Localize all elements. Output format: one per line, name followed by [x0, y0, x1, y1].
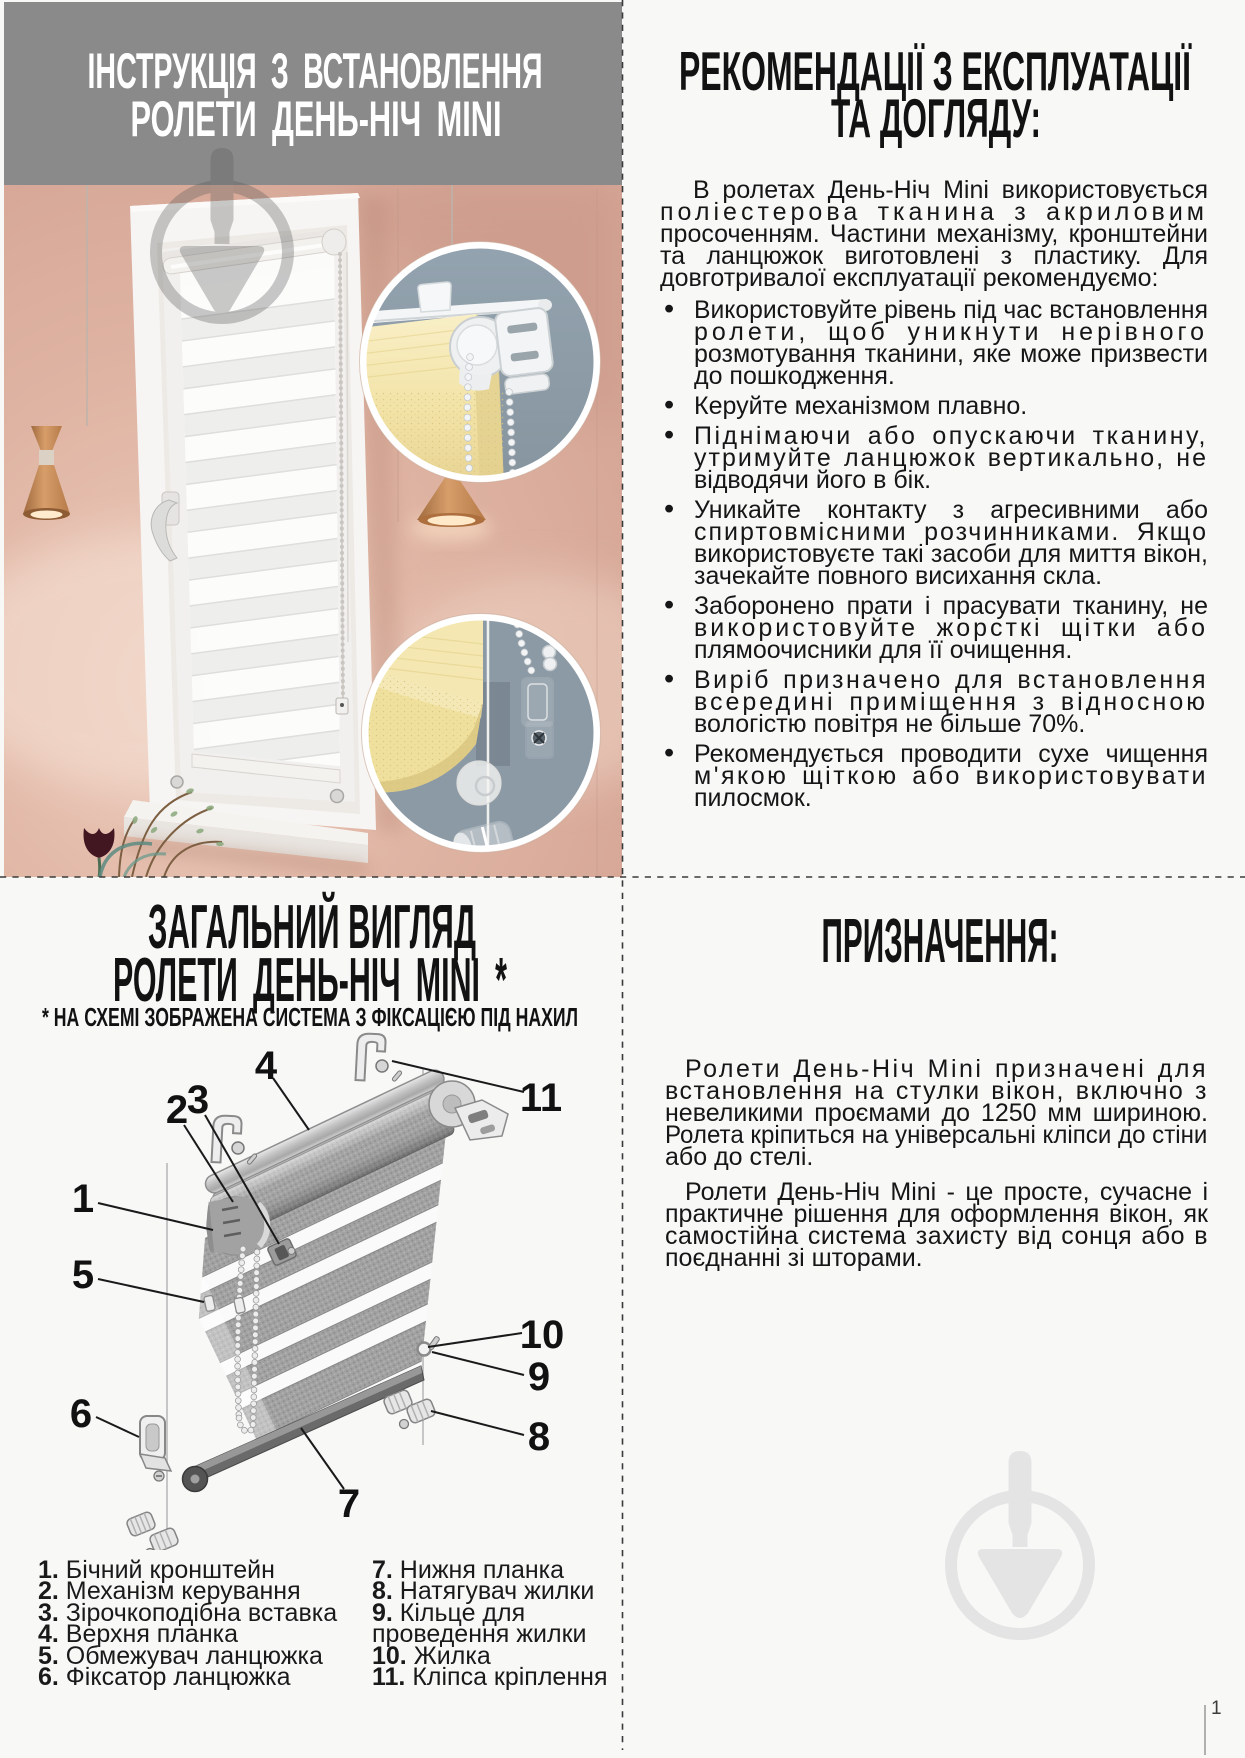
svg-text:ТА ДОГЛЯДУ:: ТА ДОГЛЯДУ:: [831, 87, 1041, 149]
svg-text:4: 4: [255, 1044, 278, 1088]
svg-text:3: 3: [187, 1078, 209, 1122]
svg-text:1: 1: [72, 1177, 94, 1221]
svg-text:8: 8: [528, 1415, 550, 1459]
svg-text:ПРИЗНАЧЕННЯ:: ПРИЗНАЧЕННЯ:: [822, 907, 1059, 976]
svg-text:7: 7: [338, 1482, 360, 1526]
svg-text:11: 11: [520, 1076, 562, 1120]
svg-text:2: 2: [166, 1088, 188, 1132]
svg-text:5: 5: [72, 1253, 94, 1297]
svg-text:10: 10: [520, 1313, 565, 1357]
svg-text:6: 6: [70, 1392, 92, 1436]
svg-text:9: 9: [528, 1355, 550, 1399]
svg-text:* НА СХЕМІ ЗОБРАЖЕНА СИСТЕМА З: * НА СХЕМІ ЗОБРАЖЕНА СИСТЕМА З ФІКСАЦІЄЮ…: [42, 1004, 578, 1032]
